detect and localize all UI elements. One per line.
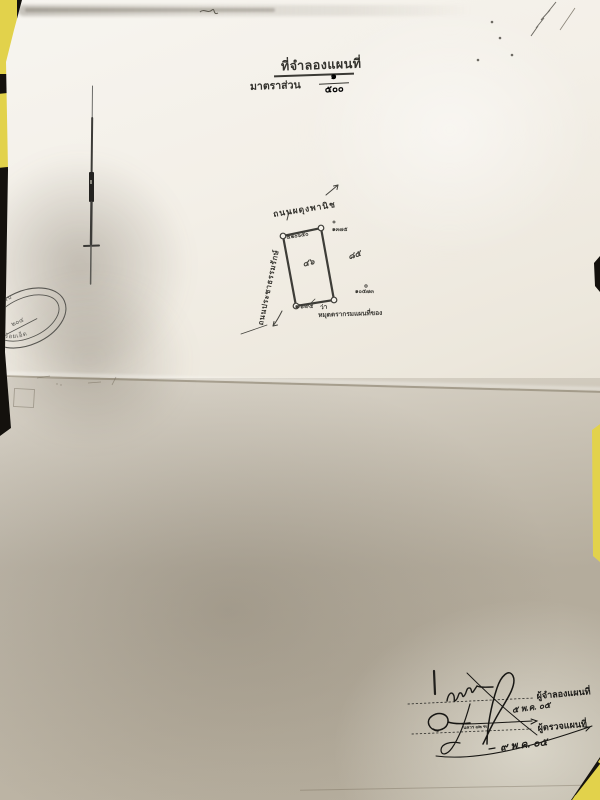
bottom-fold-crease [300,784,600,791]
stamp-number: ๒๐๔ [10,316,25,328]
top-edge-smudge-dark [25,8,275,12]
road-label-left: ถนนประชาธรรมรักษ์ [255,249,283,327]
right-edge-mark [560,8,575,30]
corner-label-top-right: ๑๓๗๕ [332,226,348,234]
stamp-arc-top-text: ทะเบียนรับ [0,293,18,322]
signature-line2-note: นควร ๗๒ ฑ [463,723,487,731]
corner-label-top-left: ๕๒๐๖๕๐ [286,231,309,242]
photographer-shadow-upper [0,110,230,420]
paper-highlight [300,0,600,260]
plot-inner-mark: ๔๖ [301,254,316,270]
horizontal-fold-crease [0,375,600,393]
signature-line2-date: ๙ พ.ค. ๐๕ [499,733,548,756]
photo-scene: ทะเบียนรับ ร้อยเอ็ด ๒๐๔ [0,0,600,800]
photographer-shadow-mid [0,240,230,480]
plot-annotation: หมุดตรากรมแผนที่ของ [318,308,382,320]
plot-side-mark: ๘๕ [346,246,363,263]
survey-pin [84,86,99,284]
scale-denominator: ๕๐๐ [325,85,344,96]
line-art-layer: ทะเบียนรับ ร้อยเอ็ด ๒๐๔ [0,0,600,800]
pencil-marks [14,376,116,408]
corner-label-bottom-left: ๑/๖/๙๕ [295,303,313,311]
corner-label-bottom-right: ๑๐๕๗๓ [355,288,374,296]
scale-fraction: ๑ ๕๐๐ [315,71,352,96]
signature-scrawl-1 [447,686,493,701]
scale-numerator: ๑ [330,72,337,82]
scale-label: มาตราส่วน [250,76,301,95]
road-label-top: ถนนผดุงพานิช [272,197,337,221]
document-paper: ทะเบียนรับ ร้อยเอ็ด ๒๐๔ [0,0,600,800]
signature-line2-label: ผู้ตรวจแผนที่ [537,717,587,735]
stamp-arc-bottom-text: ร้อยเอ็ด [2,325,29,347]
signature-line1-date: ๕ พ.ค. ๐๕ [511,698,551,717]
office-stamp: ทะเบียนรับ ร้อยเอ็ด ๒๐๔ [0,275,75,360]
staple-marks [477,2,556,61]
